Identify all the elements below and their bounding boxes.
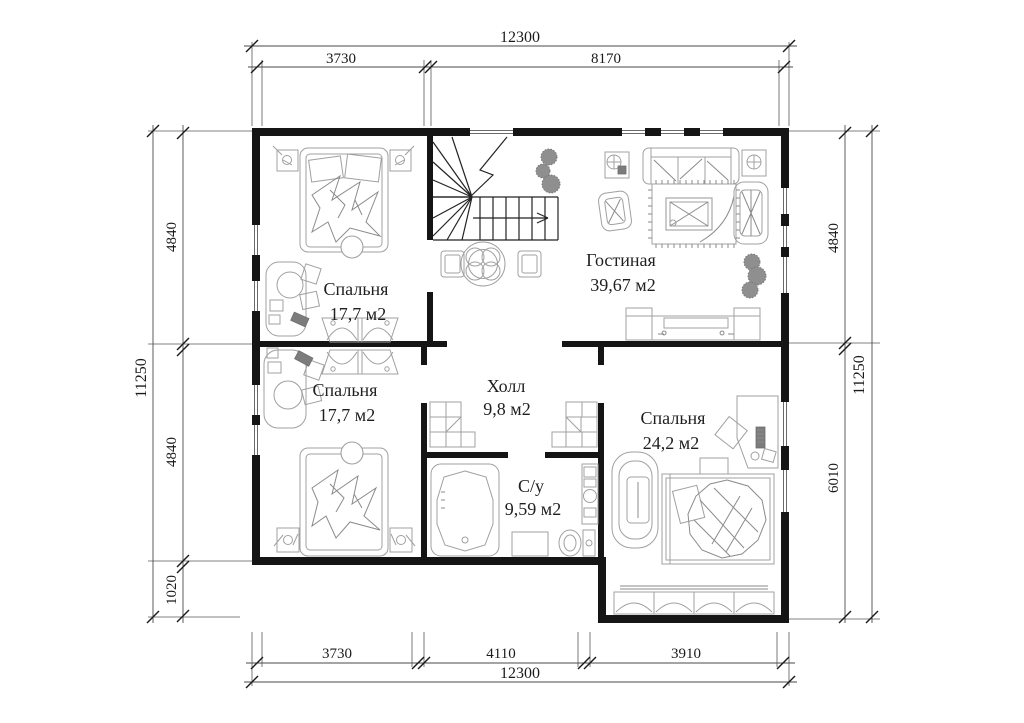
wall-stair-lower — [427, 292, 433, 341]
wall-exterior-bottom-left — [252, 557, 606, 565]
dim-right-seg1: 4840 — [826, 223, 842, 253]
bathroom-area: 9,59 м2 — [505, 499, 561, 519]
window-right-bedroom3-b — [781, 470, 789, 512]
bath-mat-icon — [512, 532, 548, 556]
bed-icon — [300, 148, 388, 258]
desk-icon — [715, 396, 778, 468]
window-top-living-3 — [700, 128, 723, 136]
plant-icon — [742, 254, 766, 298]
nightstand-icon — [700, 458, 728, 474]
bedroom3-furniture — [612, 396, 778, 614]
window-left-bedroom1-a — [252, 225, 260, 255]
staircase-icon — [433, 137, 558, 240]
dim-bottom-seg3: 3910 — [671, 646, 701, 662]
wall-exterior-bottom-right — [598, 615, 789, 623]
wall-stair-upper — [427, 136, 433, 240]
living-name: Гостиная — [586, 250, 656, 270]
bathtub-icon — [431, 464, 499, 556]
dim-bottom-seg1: 3730 — [322, 646, 352, 662]
nightstand-icon — [390, 528, 415, 552]
bathroom-name: С/у — [518, 476, 544, 496]
window-top-living-1 — [622, 128, 645, 136]
bedroom1-area: 17,7 м2 — [330, 304, 386, 324]
window-right-living-2 — [781, 226, 789, 247]
wardrobe-icon — [552, 402, 597, 447]
living-area: 39,67 м2 — [590, 275, 655, 295]
dim-top-seg1: 3730 — [326, 51, 356, 67]
wall-bedroom2-door-stub — [421, 347, 427, 365]
plant-icon — [536, 149, 560, 193]
bedroom3-name: Спальня — [641, 408, 706, 428]
bed-icon — [300, 442, 388, 556]
dim-left-seg2: 4840 — [164, 437, 180, 467]
sofa-icon — [643, 148, 739, 184]
sofa-icon — [612, 452, 658, 548]
dim-left-total: 11250 — [133, 358, 150, 397]
window-right-living-3 — [781, 257, 789, 293]
dim-top-seg2: 8170 — [591, 51, 621, 67]
window-top-living-2 — [661, 128, 684, 136]
room-labels: Спальня 17,7 м2 Гостиная 39,67 м2 Спальн… — [313, 250, 706, 519]
coffee-table-icon — [666, 198, 712, 230]
wall-exterior-step — [598, 557, 606, 623]
window-right-bedroom3-a — [781, 402, 789, 446]
dim-bottom-seg2: 4110 — [486, 646, 515, 662]
dim-right-total: 11250 — [851, 355, 868, 394]
chair-icon — [518, 251, 541, 277]
desk-chair-icon — [715, 417, 747, 449]
dim-left-seg3: 1020 — [164, 575, 180, 605]
armchair-icon — [598, 190, 633, 232]
floor-plan-drawing: Спальня 17,7 м2 Гостиная 39,67 м2 Спальн… — [0, 0, 1024, 723]
wall-divider-right — [562, 341, 781, 347]
window-right-living-1 — [781, 188, 789, 214]
wall-bedroom2-right — [421, 403, 427, 557]
side-table-lamp-icon — [605, 152, 629, 178]
round-table-icon — [461, 242, 505, 286]
bedroom2-name: Спальня — [313, 380, 378, 400]
bedroom2-area: 17,7 м2 — [319, 405, 375, 425]
living-room-furniture — [598, 148, 768, 340]
tv-icon — [664, 318, 728, 328]
toilet-icon — [559, 530, 595, 556]
desk-chair-icon — [277, 272, 303, 298]
desk-icon — [266, 262, 321, 336]
dim-left-seg1: 4840 — [164, 222, 180, 252]
wardrobe-icon — [614, 586, 774, 614]
dim-top-total: 12300 — [500, 29, 540, 46]
nightstand-icon — [390, 146, 414, 171]
dimension-left: 11250 4840 4840 1020 — [133, 125, 252, 623]
window-left-bedroom2-b — [252, 425, 260, 455]
window-left-bedroom2-a — [252, 385, 260, 415]
desk-chair-icon — [274, 381, 302, 409]
sink-vanity-icon — [582, 464, 598, 524]
dim-bottom-total: 12300 — [500, 665, 540, 682]
nightstand-icon — [273, 146, 298, 171]
hall-name: Холл — [487, 376, 526, 396]
dim-right-seg2: 6010 — [826, 463, 842, 493]
floor-plan-page: Спальня 17,7 м2 Гостиная 39,67 м2 Спальн… — [0, 0, 1024, 723]
bed-icon — [662, 474, 774, 564]
bedroom3-area: 24,2 м2 — [643, 433, 699, 453]
wall-bedroom3-left — [598, 403, 604, 557]
bedroom1-name: Спальня — [324, 279, 389, 299]
stair-break-line — [470, 137, 507, 197]
wall-exterior-left — [252, 128, 260, 565]
wall-bathroom-top-left — [421, 452, 508, 458]
wall-bathroom-top-right — [545, 452, 604, 458]
dresser-icon — [322, 350, 398, 374]
nightstand-icon — [274, 528, 299, 552]
stair-direction-arrow — [473, 213, 548, 223]
wardrobe-icon — [430, 402, 475, 447]
dimension-bottom: 3730 4110 3910 12300 — [244, 632, 797, 688]
armchair-icon — [734, 182, 768, 244]
tv-stand-icon — [626, 308, 760, 340]
side-table-lamp-icon — [742, 150, 766, 176]
dimension-top: 12300 3730 8170 — [244, 29, 797, 126]
dimension-right: 4840 6010 11250 — [789, 125, 880, 623]
window-top-stairs — [470, 128, 513, 136]
window-left-bedroom1-b — [252, 281, 260, 311]
wall-bedroom3-door-stub — [598, 347, 604, 365]
hall-area: 9,8 м2 — [483, 399, 530, 419]
